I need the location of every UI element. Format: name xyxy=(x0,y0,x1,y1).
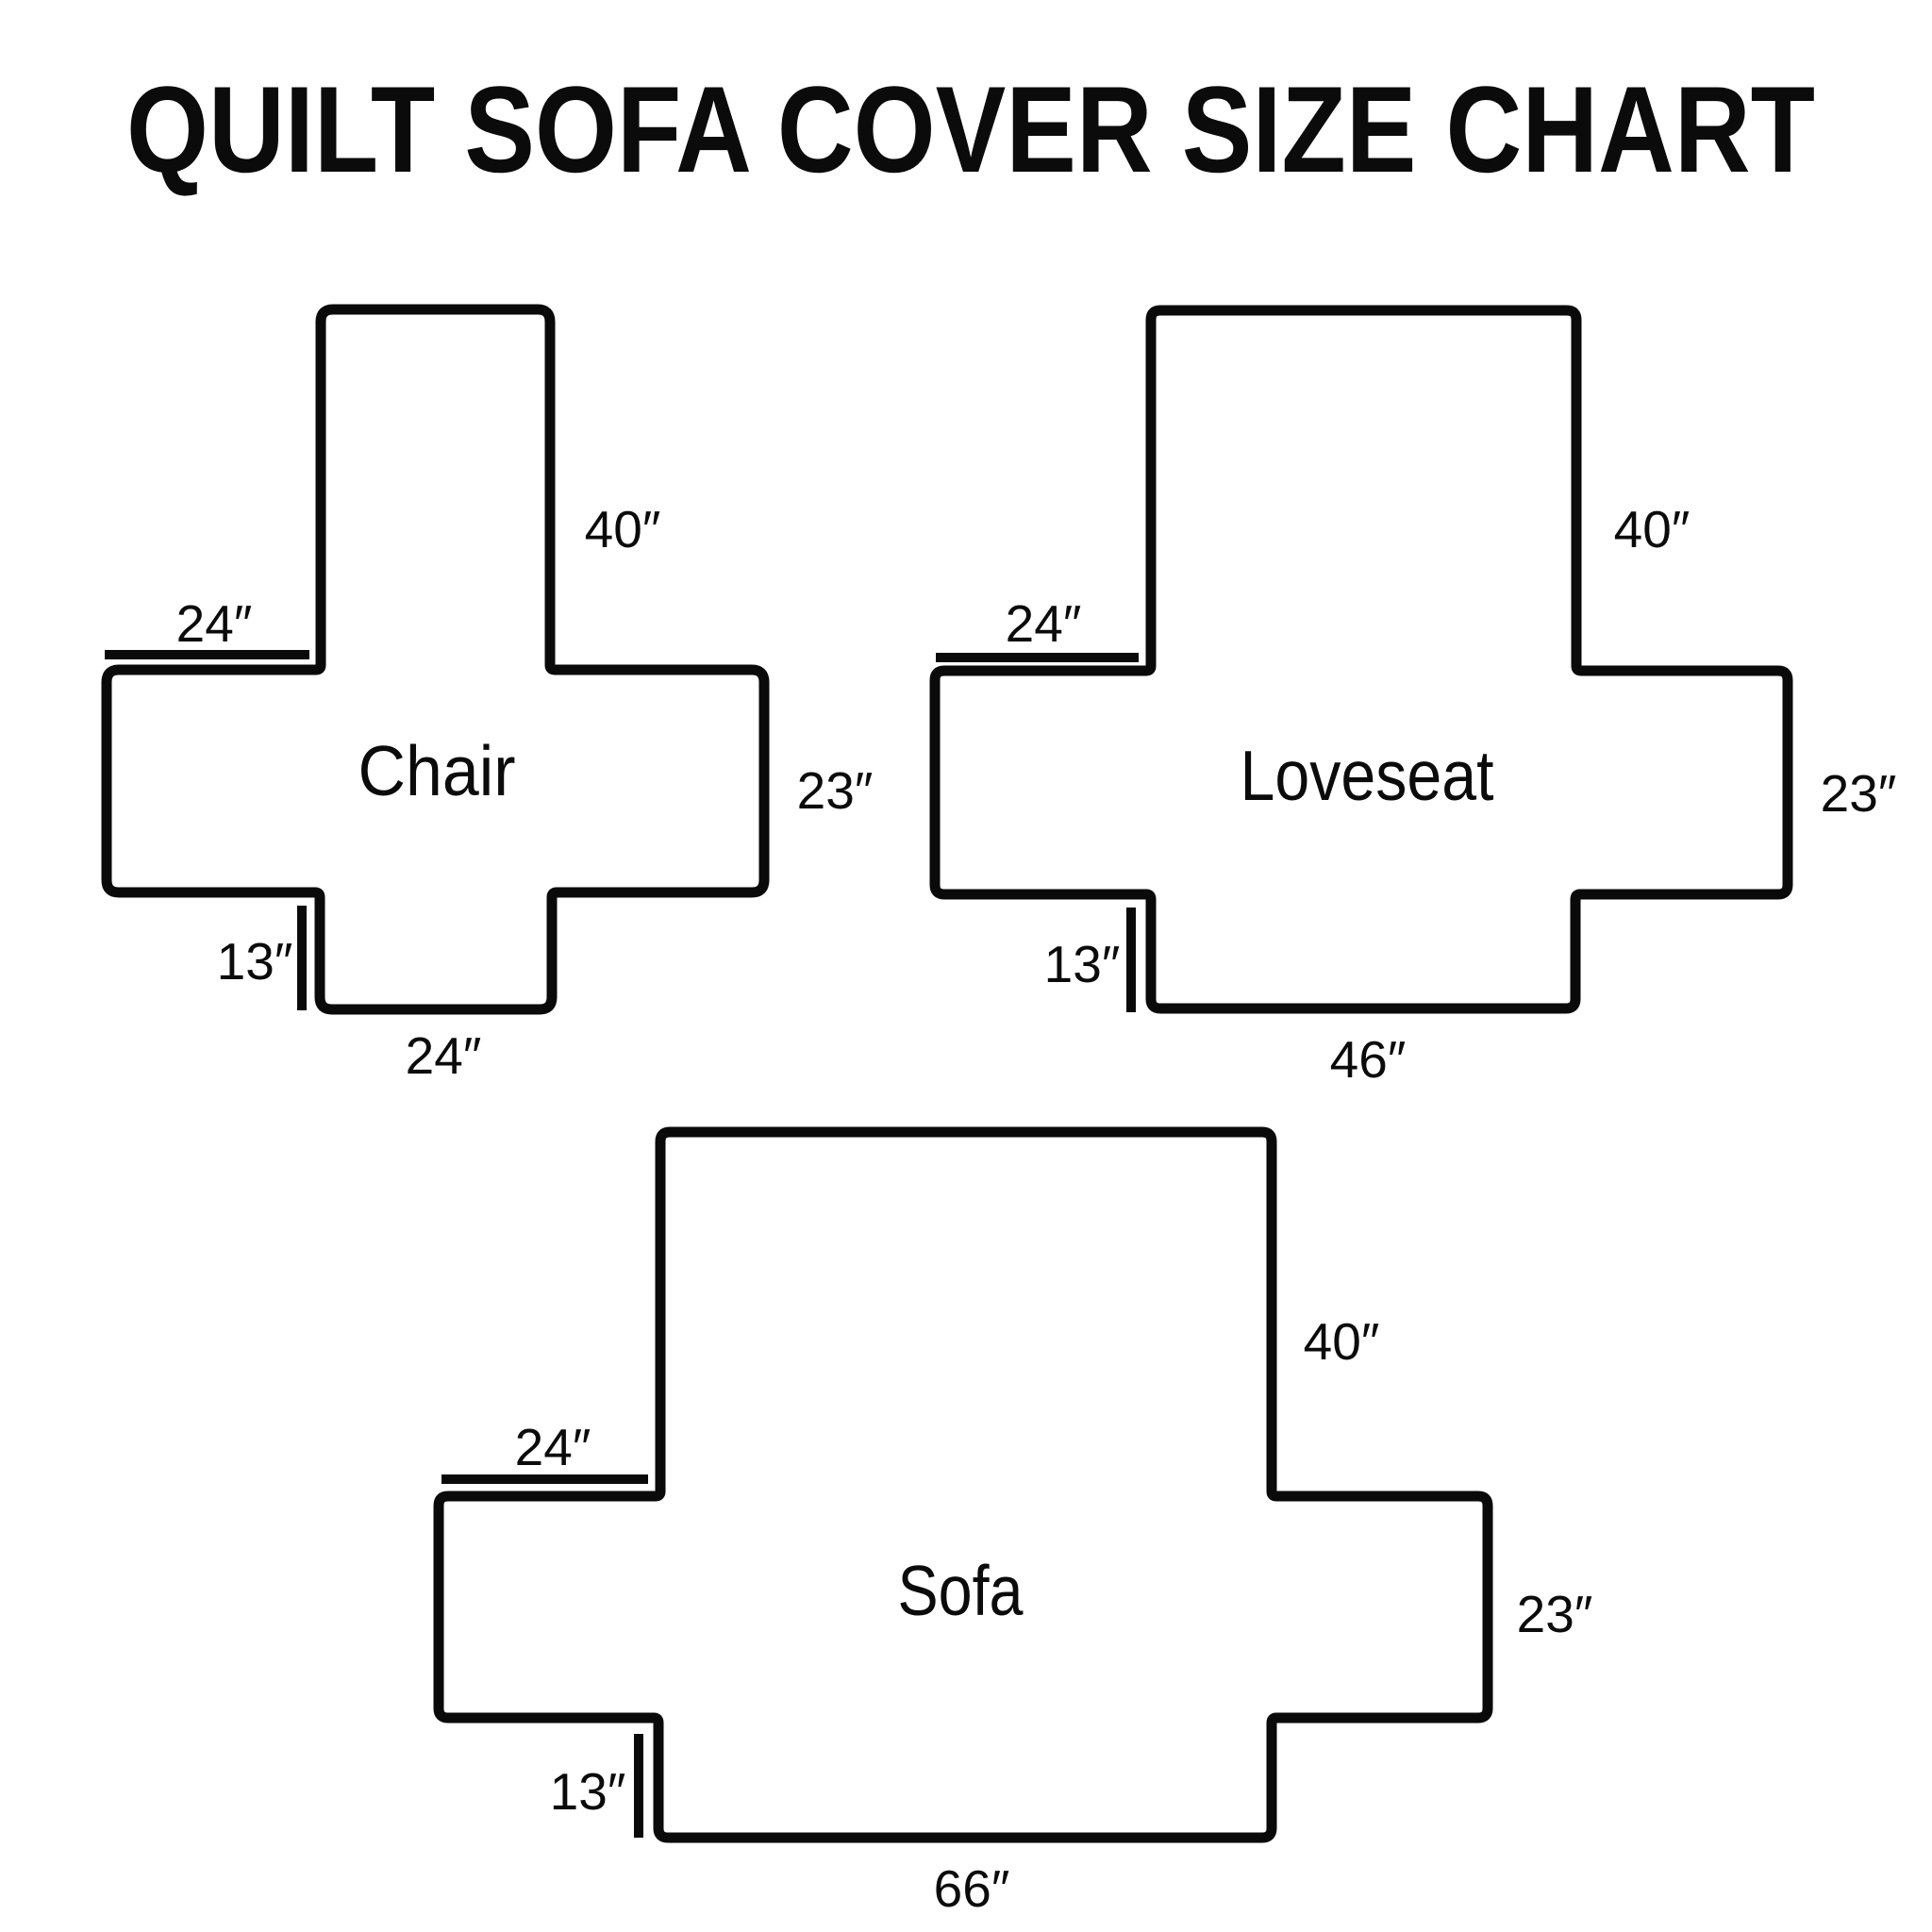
svg-text:QUILT SOFA COVER SIZE CHART: QUILT SOFA COVER SIZE CHART xyxy=(126,60,1815,198)
svg-text:13″: 13″ xyxy=(550,1762,626,1821)
svg-text:23″: 23″ xyxy=(797,761,874,820)
svg-text:Loveseat: Loveseat xyxy=(1241,736,1494,815)
svg-text:40″: 40″ xyxy=(1304,1312,1380,1371)
svg-text:24″: 24″ xyxy=(515,1418,591,1476)
svg-text:23″: 23″ xyxy=(1517,1585,1593,1643)
svg-text:Chair: Chair xyxy=(358,731,516,810)
svg-text:24″: 24″ xyxy=(176,594,253,653)
svg-text:40″: 40″ xyxy=(585,500,661,558)
svg-text:24″: 24″ xyxy=(1006,594,1082,653)
svg-text:13″: 13″ xyxy=(1044,935,1121,993)
svg-text:Sofa: Sofa xyxy=(898,1551,1024,1630)
svg-text:40″: 40″ xyxy=(1614,500,1690,558)
svg-text:24″: 24″ xyxy=(406,1026,482,1085)
svg-text:66″: 66″ xyxy=(934,1859,1010,1918)
svg-text:46″: 46″ xyxy=(1330,1030,1407,1089)
svg-text:13″: 13″ xyxy=(217,932,293,991)
svg-text:23″: 23″ xyxy=(1821,764,1897,823)
